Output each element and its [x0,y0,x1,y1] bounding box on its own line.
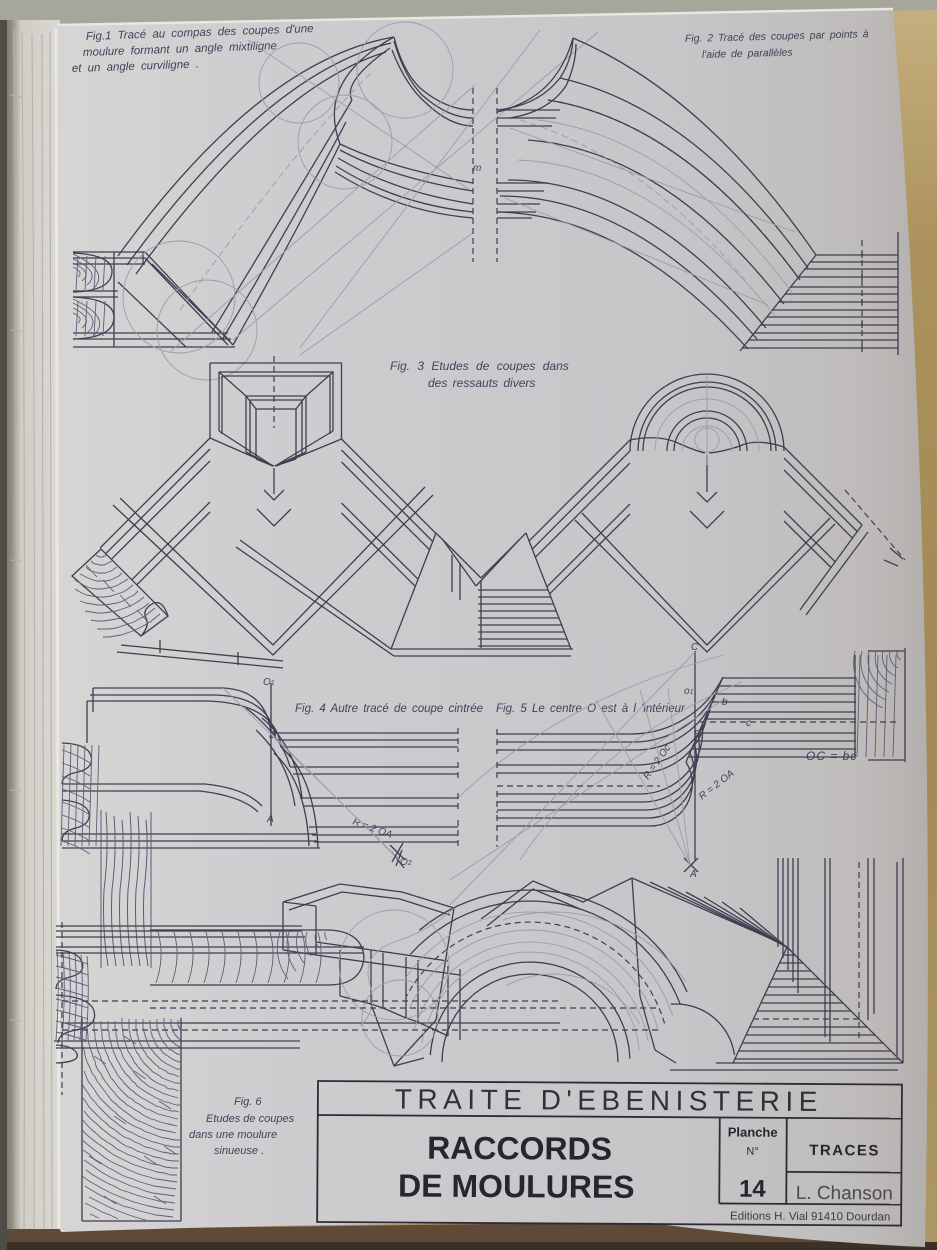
svg-text:DE MOULURES: DE MOULURES [398,1167,635,1204]
svg-text:Fig. 4 Autre tracé de coup: Fig. 4 Autre tracé de coupe cintrée [295,703,483,715]
svg-text:Fig. 6: Fig. 6 [234,1096,262,1108]
svg-text:c: c [746,718,751,729]
svg-text:N°: N° [746,1146,758,1158]
svg-text:m: m [473,163,481,174]
svg-text:Planche: Planche [728,1125,778,1140]
svg-text:dans une moulure: dans une moulure [189,1129,277,1141]
svg-text:Fig. 3 Etudes de coupes d: Fig. 3 Etudes de coupes dans [390,359,569,373]
svg-text:14: 14 [739,1176,767,1203]
svg-text:Etudes de coupes: Etudes de coupes [206,1113,295,1125]
svg-text:sinueuse .: sinueuse . [214,1145,264,1157]
svg-text:RACCORDS: RACCORDS [427,1130,612,1167]
svg-text:des ressauts divers: des ressauts divers [428,376,535,390]
svg-text:TRAITE D'EBENISTERIE: TRAITE D'EBENISTERIE [395,1083,823,1117]
svg-text:TRACES: TRACES [809,1142,880,1159]
svg-text:OC = bc: OC = bc [806,749,857,763]
svg-text:L. Chanson: L. Chanson [796,1183,893,1205]
svg-text:l'aide de parallèles: l'aide de parallèles [702,47,794,61]
svg-text:A: A [266,814,274,825]
svg-text:Editions H. Vial 91410 Dourda: Editions H. Vial 91410 Dourdan [730,1211,890,1224]
